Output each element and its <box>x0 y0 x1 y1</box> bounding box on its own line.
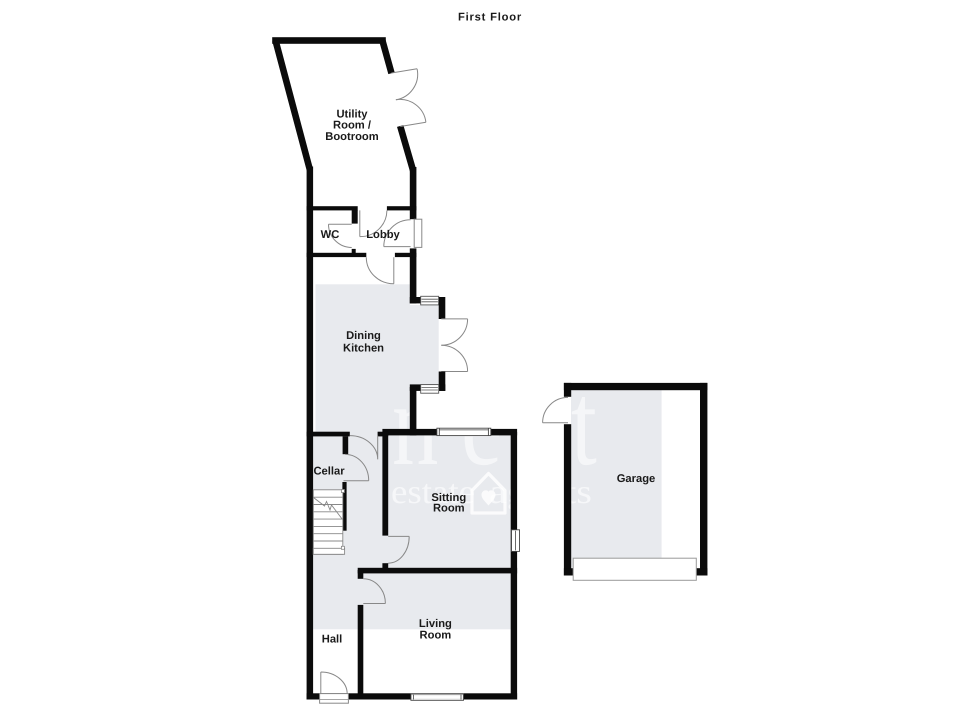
svg-text:Garage: Garage <box>617 473 656 485</box>
svg-text:t: t <box>571 358 597 490</box>
svg-text:Hall: Hall <box>322 634 343 646</box>
svg-text:x: x <box>524 358 570 490</box>
svg-text:Cellar: Cellar <box>313 465 345 477</box>
svg-text:Bootroom: Bootroom <box>325 131 378 143</box>
svg-text:Room /: Room / <box>333 120 371 132</box>
svg-text:e: e <box>461 358 502 490</box>
svg-text:Utility: Utility <box>336 109 368 121</box>
svg-text:Room: Room <box>420 630 452 642</box>
svg-text:WC: WC <box>321 229 340 241</box>
svg-text:Dining: Dining <box>346 330 381 342</box>
svg-text:First Floor: First Floor <box>458 11 522 23</box>
svg-text:Kitchen: Kitchen <box>343 343 384 355</box>
svg-text:Room: Room <box>433 503 465 515</box>
svg-text:Living: Living <box>419 618 452 630</box>
svg-text:Lobby: Lobby <box>366 229 400 241</box>
